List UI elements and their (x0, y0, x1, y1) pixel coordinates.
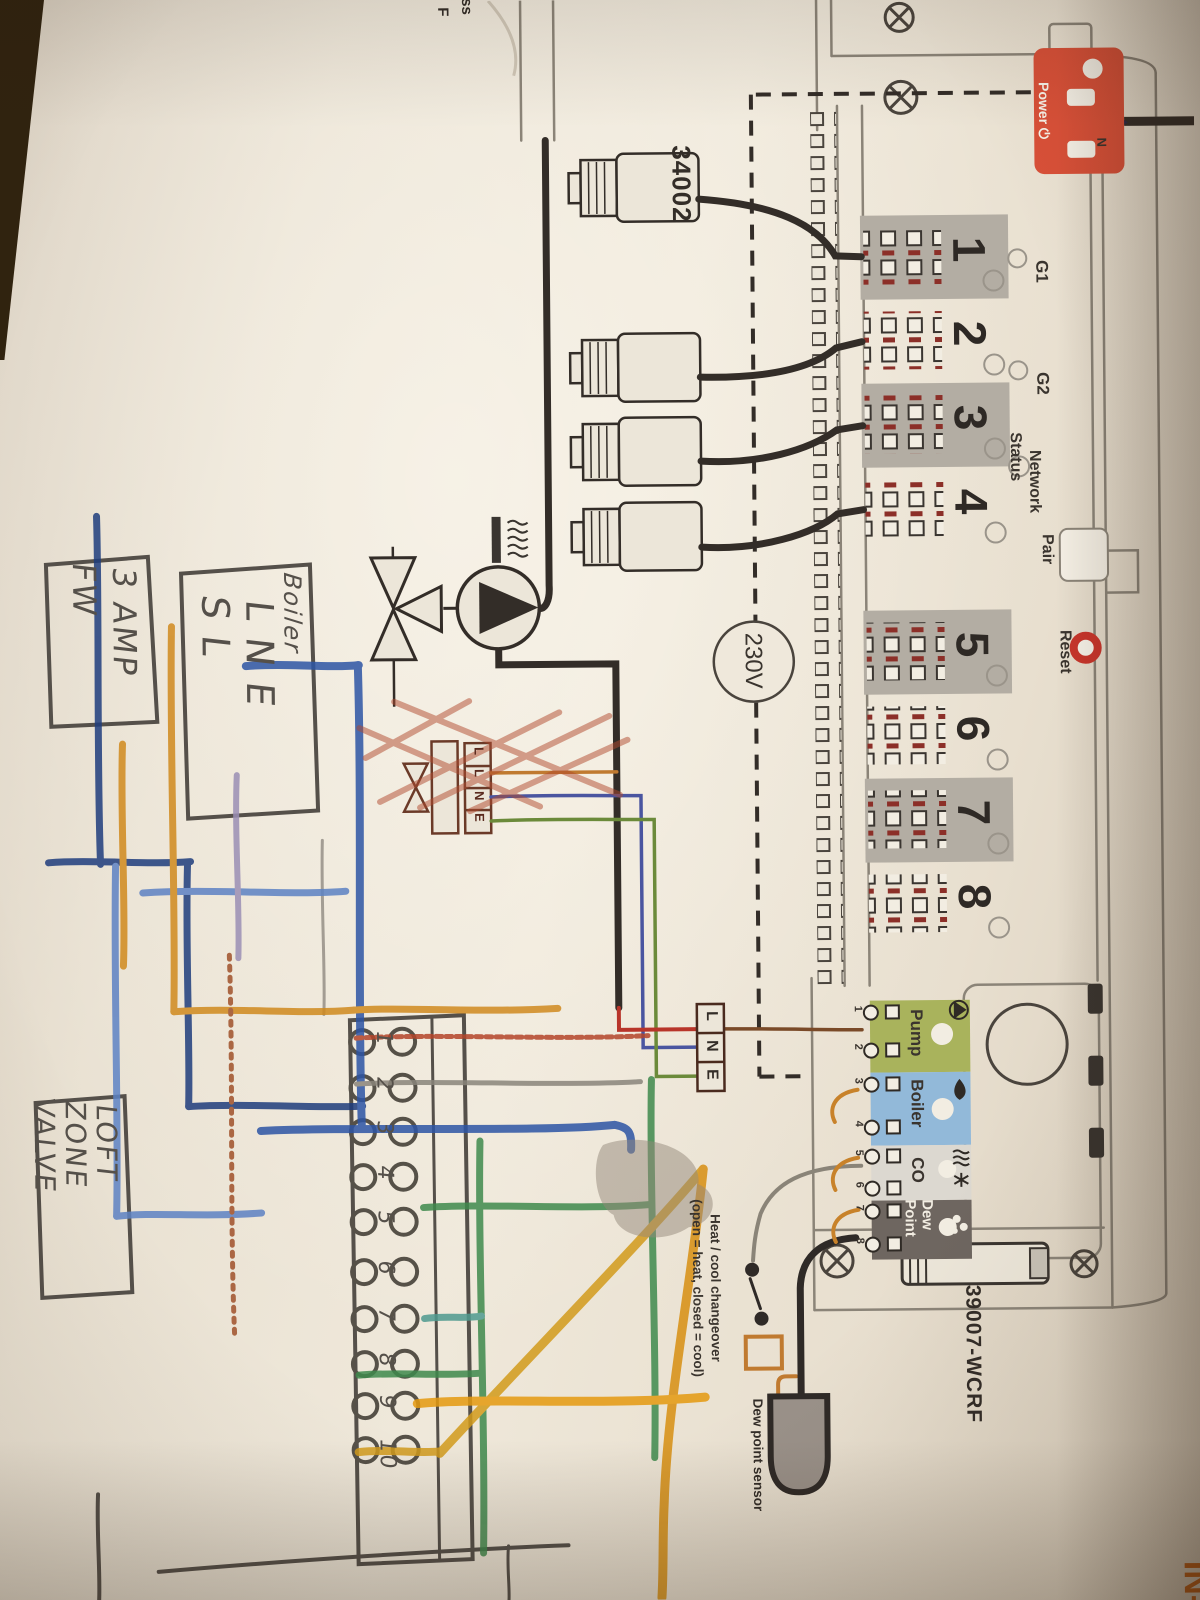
valve-block-t3: N (472, 791, 487, 801)
output-terminal-5: 5 (853, 1150, 865, 1156)
g1-label: G1 (1031, 260, 1051, 283)
boiler-label: Boiler (906, 1079, 926, 1127)
zone-3-number: 3 (944, 405, 998, 431)
boiler-box-terminals: L N ES L (193, 593, 281, 711)
model-number-label: 39007-WCRF (960, 1285, 985, 1424)
power-n-label: N (1094, 138, 1109, 148)
dew-point-sensor-shape (770, 1396, 828, 1492)
diagram-linework (0, 0, 1200, 1600)
strip-number-5: 5 (373, 1209, 398, 1228)
output-terminal-4: 4 (853, 1121, 865, 1127)
output-terminal-6: 6 (853, 1182, 865, 1188)
network-status-label: NetworkStatus (986, 432, 1063, 514)
corner-cutoff-text: IN-2 (1176, 1561, 1200, 1600)
strip-number-8: 8 (374, 1351, 399, 1370)
changeover-label: Heat / cool changeover(open = heat, clos… (669, 1199, 743, 1377)
mains-e-label: E (702, 1069, 720, 1080)
zone-5-number: 5 (946, 632, 1000, 658)
output-terminal-2: 2 (852, 1044, 864, 1050)
strip-number-1: 1 (371, 1029, 396, 1048)
strip-number-2: 2 (371, 1075, 396, 1094)
pair-button-label: Pair (1038, 534, 1056, 564)
output-terminal-7: 7 (854, 1205, 866, 1211)
output-terminal-3: 3 (852, 1078, 864, 1084)
dew-sensor-label: Dew point sensor (750, 1399, 766, 1512)
zone-2-number: 2 (943, 321, 997, 347)
power-terminal-l (1067, 89, 1095, 106)
strip-number-10: 10 (375, 1437, 400, 1472)
strip-number-4: 4 (372, 1164, 397, 1183)
zone-valve-box-label: LOFTZONEVALVE (28, 1096, 121, 1202)
photo-of-wiring-diagram: Power ⏻ N 34002 1 2 3 4 5 6 7 8 G1 G2 Ne… (0, 0, 1200, 1600)
zone-6-number: 6 (946, 716, 1000, 742)
mains-n-label: N (702, 1040, 720, 1052)
boiler-box-title: Boiler (278, 571, 307, 655)
zone-1-number: 1 (942, 237, 996, 263)
diagram-layer: Power ⏻ N 34002 1 2 3 4 5 6 7 8 G1 G2 Ne… (0, 0, 1200, 1600)
valve-block-t2: L (472, 769, 487, 777)
power-led (1083, 59, 1103, 79)
zone-8-number: 8 (948, 883, 1002, 909)
valve-block-t1: L (472, 747, 487, 755)
fuse-box-label: 3 AMPFW (64, 561, 145, 679)
actuator-model-label: 34002 (665, 145, 697, 223)
strip-number-7: 7 (373, 1306, 398, 1325)
mains-l-label: L (702, 1011, 720, 1021)
power-terminal-n (1067, 141, 1095, 158)
pump-label: Pump (906, 1009, 926, 1056)
power-label: Power ⏻ (1035, 82, 1052, 139)
strip-number-9: 9 (374, 1393, 399, 1412)
strip-number-3: 3 (372, 1119, 397, 1138)
strip-number-6: 6 (373, 1259, 398, 1278)
valve-block-t4: E (472, 813, 487, 822)
output-terminal-8: 8 (854, 1238, 866, 1244)
output-terminal-1: 1 (852, 1006, 864, 1012)
edge-text-ss: ss (458, 0, 475, 15)
reset-button-label: Reset (1056, 630, 1074, 674)
voltage-label: 230V (739, 633, 767, 689)
zone-7-number: 7 (947, 800, 1001, 826)
edge-text-f: F (434, 7, 451, 16)
dew-point-label: DewPoint (901, 1199, 936, 1237)
co-label: CO (907, 1157, 927, 1183)
g2-label: G2 (1032, 372, 1052, 395)
